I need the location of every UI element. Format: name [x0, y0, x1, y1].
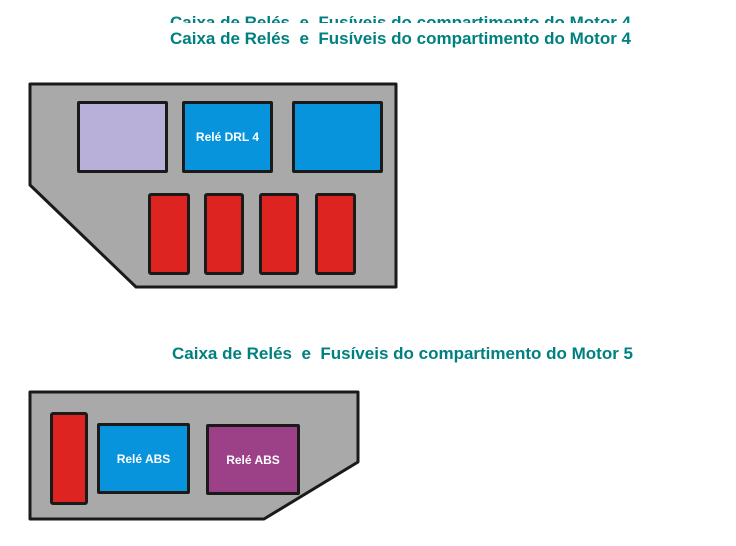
fuse-motor4-2 [204, 193, 244, 275]
page-title-motor4-ghost-text: Caixa de Relés e Fusíveis do compartimen… [170, 13, 690, 23]
fuse-motor4-4 [315, 193, 356, 275]
relay-blue-unlabeled [292, 101, 383, 173]
relay-lavender-unlabeled [77, 101, 168, 173]
fuse-motor5-1 [50, 412, 88, 505]
page-title-motor4: Caixa de Relés e Fusíveis do compartimen… [170, 29, 631, 49]
fuse-motor4-1 [148, 193, 190, 275]
relay-abs-blue: Relé ABS [97, 423, 190, 494]
page-title-motor5: Caixa de Relés e Fusíveis do compartimen… [172, 344, 633, 364]
relay-abs-purple: Relé ABS [206, 424, 300, 495]
page-title-motor4-ghost: Caixa de Relés e Fusíveis do compartimen… [170, 13, 690, 23]
relay-drl-4: Relé DRL 4 [182, 101, 273, 173]
fuse-motor4-3 [259, 193, 299, 275]
fusebox-diagram-page: Caixa de Relés e Fusíveis do compartimen… [0, 0, 736, 546]
